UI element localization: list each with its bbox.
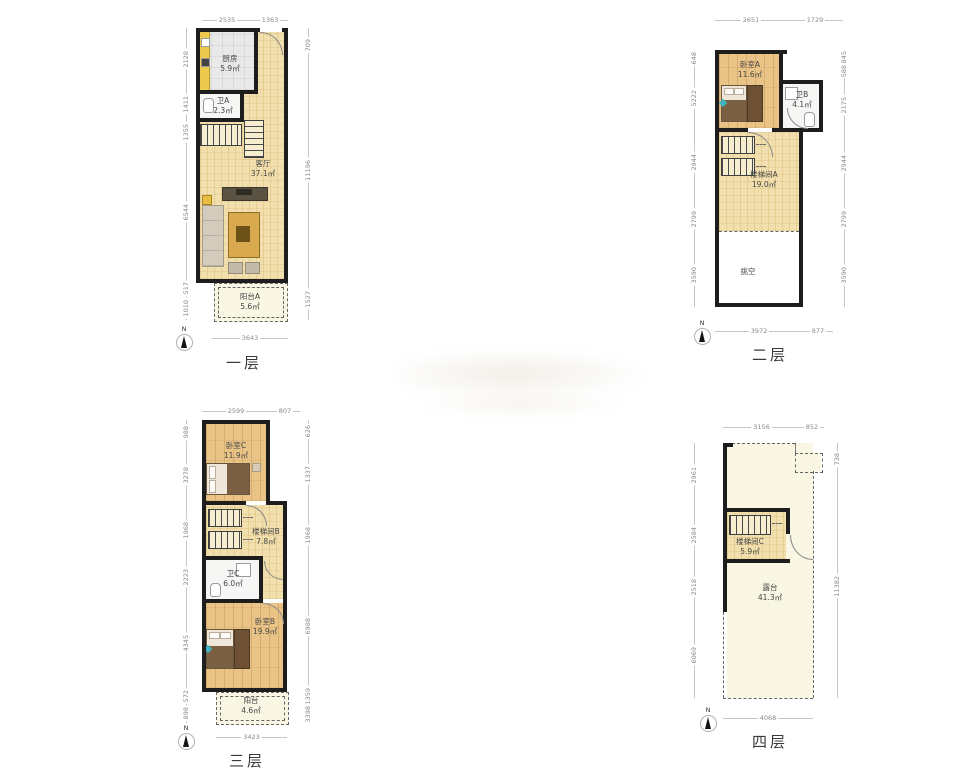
dim-label: 1363	[252, 16, 288, 25]
wall	[196, 118, 244, 122]
wall	[202, 599, 263, 603]
dim-label: 588	[840, 64, 849, 78]
north-label: N	[698, 707, 718, 714]
floor-plan-4: 楼梯间C5.9㎡ 露台41.3㎡ 3156 852 2961 2584 2518…	[690, 415, 940, 770]
pillow-icon	[209, 466, 216, 479]
dim-label: 2223	[182, 556, 191, 599]
terrace-floor	[727, 443, 813, 698]
dim-label: 626	[304, 420, 313, 443]
wall	[202, 556, 263, 560]
dim-label: 3278	[182, 445, 191, 505]
wall	[202, 420, 270, 424]
dim-label: 4345	[182, 599, 191, 688]
room-label-stairwell-c: 楼梯间C5.9㎡	[736, 537, 764, 557]
room-label-stairwell-a: 楼梯间A19.0㎡	[750, 170, 778, 190]
floor-plan-1: 厨房5.9㎡ 卫A2.3㎡ 客厅37.1㎡ 阳台A5.6㎡ 2535 1363 …	[178, 14, 418, 386]
floor-title-2: 二层	[752, 344, 788, 365]
compass-needle	[699, 330, 705, 342]
dim-label: 6544	[182, 146, 191, 279]
bed-icon	[206, 629, 234, 669]
wall	[254, 28, 258, 94]
dim-label: 1968	[304, 505, 313, 565]
wall	[196, 28, 200, 283]
dim-label: 738	[833, 443, 842, 475]
wall	[723, 508, 790, 512]
dim-label: 2599	[202, 407, 270, 416]
dim-label: 2128	[182, 28, 191, 90]
room-label-kitchen: 厨房5.9㎡	[220, 54, 239, 74]
dim-label: 2799	[690, 194, 699, 244]
room-label-void: 挑空	[741, 267, 756, 277]
dim-label: 5222	[690, 66, 699, 130]
stair-direction-line	[772, 523, 782, 524]
terrace-outline	[727, 443, 795, 444]
floor-title-1: 一层	[226, 352, 262, 373]
compass-circle	[178, 733, 195, 750]
stairs-icon	[200, 124, 242, 146]
compass-needle	[183, 735, 189, 747]
wardrobe-icon	[234, 629, 250, 669]
dim-label: 11382	[833, 475, 842, 698]
bed-icon	[206, 463, 250, 495]
dim-label: 3590	[840, 244, 849, 307]
dim-label: 807	[270, 407, 300, 416]
north-label: N	[692, 320, 712, 327]
floor-plan-2: 卧室A11.6㎡ 卫B4.1㎡ 楼梯间A19.0㎡ 挑空 2651 1729 6…	[690, 14, 930, 386]
room-label-bath-a: 卫A2.3㎡	[213, 96, 232, 116]
room-label-bedroom-a: 卧室A11.6㎡	[738, 60, 762, 80]
wall	[283, 501, 287, 692]
wall	[266, 420, 270, 505]
dim-label: 1359	[304, 688, 313, 705]
dim-label: 1355	[182, 118, 191, 146]
wall	[799, 128, 803, 307]
dim-label: 1527	[304, 279, 313, 320]
pillow-icon	[209, 632, 220, 639]
dim-label: 2584	[690, 508, 699, 563]
floor-plan-3: 卧室C11.9㎡ 楼梯间B7.8㎡ 卫C6.0㎡ 卧室B19.9㎡ 阳台4.6㎡…	[178, 405, 418, 772]
pillow-icon	[209, 480, 216, 493]
wall	[819, 80, 823, 132]
dim-label: 898	[182, 704, 191, 723]
dim-label: 1010	[182, 297, 191, 320]
stool-icon	[228, 262, 243, 274]
wall	[723, 443, 733, 447]
room-label-bath-b: 卫B4.1㎡	[792, 90, 811, 110]
terrace-outline	[723, 612, 724, 698]
table-decor-icon	[236, 226, 250, 242]
dim-label: 1968	[182, 505, 191, 556]
blanket-icon	[227, 464, 249, 494]
dim-label: 988	[182, 420, 191, 445]
dim-label: 3156	[723, 423, 800, 432]
dim-label: 6069	[690, 612, 699, 698]
dim-label: 1411	[182, 90, 191, 118]
pillow-icon	[734, 88, 744, 95]
dim-label: 517	[182, 279, 191, 297]
dim-label: 852	[800, 423, 824, 432]
tv-icon	[236, 189, 252, 195]
compass-circle	[694, 328, 711, 345]
dim-label: 845	[840, 50, 849, 64]
north-label: N	[176, 725, 196, 732]
room-label-balcony: 阳台4.6㎡	[241, 696, 260, 716]
dim-label: 3423	[216, 733, 287, 742]
compass-icon: N	[174, 326, 194, 351]
watermark	[400, 348, 650, 400]
room-label-stairwell-b: 楼梯间B7.8㎡	[252, 527, 280, 547]
stool-icon	[245, 262, 260, 274]
dim-label: 2944	[840, 133, 849, 194]
wall	[259, 556, 263, 603]
pillow-icon	[220, 632, 231, 639]
terrace-notch-outline	[795, 453, 823, 473]
room-label-bedroom-c: 卧室C11.9㎡	[224, 441, 248, 461]
wall	[715, 303, 803, 307]
sofa-icon	[202, 205, 224, 267]
dim-label: 709	[304, 28, 313, 62]
watermark	[420, 392, 620, 416]
stairs-icon	[729, 515, 771, 535]
floorplan-sheet: 厨房5.9㎡ 卫A2.3㎡ 客厅37.1㎡ 阳台A5.6㎡ 2535 1363 …	[0, 0, 979, 772]
wall	[715, 50, 719, 307]
terrace-outline	[813, 471, 814, 698]
floor-title-4: 四层	[752, 731, 788, 752]
wall	[196, 90, 258, 94]
dim-label: 2518	[690, 563, 699, 612]
dim-label: 6988	[304, 565, 313, 688]
wardrobe-icon	[747, 85, 763, 122]
dim-label: 1337	[304, 443, 313, 505]
room-label-terrace: 露台41.3㎡	[758, 583, 782, 603]
void-boundary-line	[719, 231, 799, 232]
room-label-living: 客厅37.1㎡	[251, 159, 275, 179]
nightstand-icon	[252, 463, 261, 472]
room-label-balcony-a: 阳台A5.6㎡	[240, 292, 260, 312]
dim-label: 2799	[840, 194, 849, 244]
dim-label: 648	[690, 50, 699, 66]
compass-needle	[181, 336, 187, 348]
sink-icon	[201, 38, 210, 47]
dim-label: 1729	[787, 16, 843, 25]
dim-label: 572	[182, 688, 191, 704]
dim-label: 4068	[723, 714, 813, 723]
terrace-outline	[795, 443, 796, 453]
wall	[284, 28, 288, 283]
compass-circle	[176, 334, 193, 351]
toilet-icon	[210, 583, 221, 597]
dim-label: 2535	[202, 16, 252, 25]
dim-label: 3972	[715, 327, 803, 336]
compass-icon: N	[176, 725, 196, 750]
compass-icon: N	[698, 707, 718, 732]
wall	[779, 80, 823, 84]
compass-icon: N	[692, 320, 712, 345]
bed-icon	[721, 85, 747, 122]
terrace-outline	[723, 698, 813, 699]
wall	[715, 50, 787, 54]
dim-label: 2175	[840, 78, 849, 133]
north-label: N	[174, 326, 194, 333]
stairs-icon	[244, 120, 264, 158]
stair-direction-line	[756, 166, 766, 167]
lamp-icon	[202, 195, 212, 205]
compass-needle	[705, 717, 711, 729]
dim-label: 877	[803, 327, 833, 336]
floor-title-3: 三层	[229, 750, 265, 771]
wall	[786, 508, 790, 534]
dim-label: 3398	[304, 705, 313, 723]
room-label-bedroom-b: 卧室B19.9㎡	[253, 617, 277, 637]
wall	[779, 50, 783, 132]
dim-label: 3590	[690, 244, 699, 307]
dim-label: 11196	[304, 62, 313, 279]
dim-label: 2944	[690, 130, 699, 194]
stove-icon	[201, 58, 210, 67]
room-label-bath-c: 卫C6.0㎡	[223, 569, 242, 589]
pillow-icon	[724, 88, 734, 95]
stairs-icon	[208, 531, 242, 549]
stairs-icon	[208, 509, 242, 527]
wall	[723, 559, 790, 563]
dim-label: 2961	[690, 443, 699, 508]
dim-label: 2651	[715, 16, 787, 25]
dim-label: 3643	[212, 334, 288, 343]
compass-circle	[700, 715, 717, 732]
